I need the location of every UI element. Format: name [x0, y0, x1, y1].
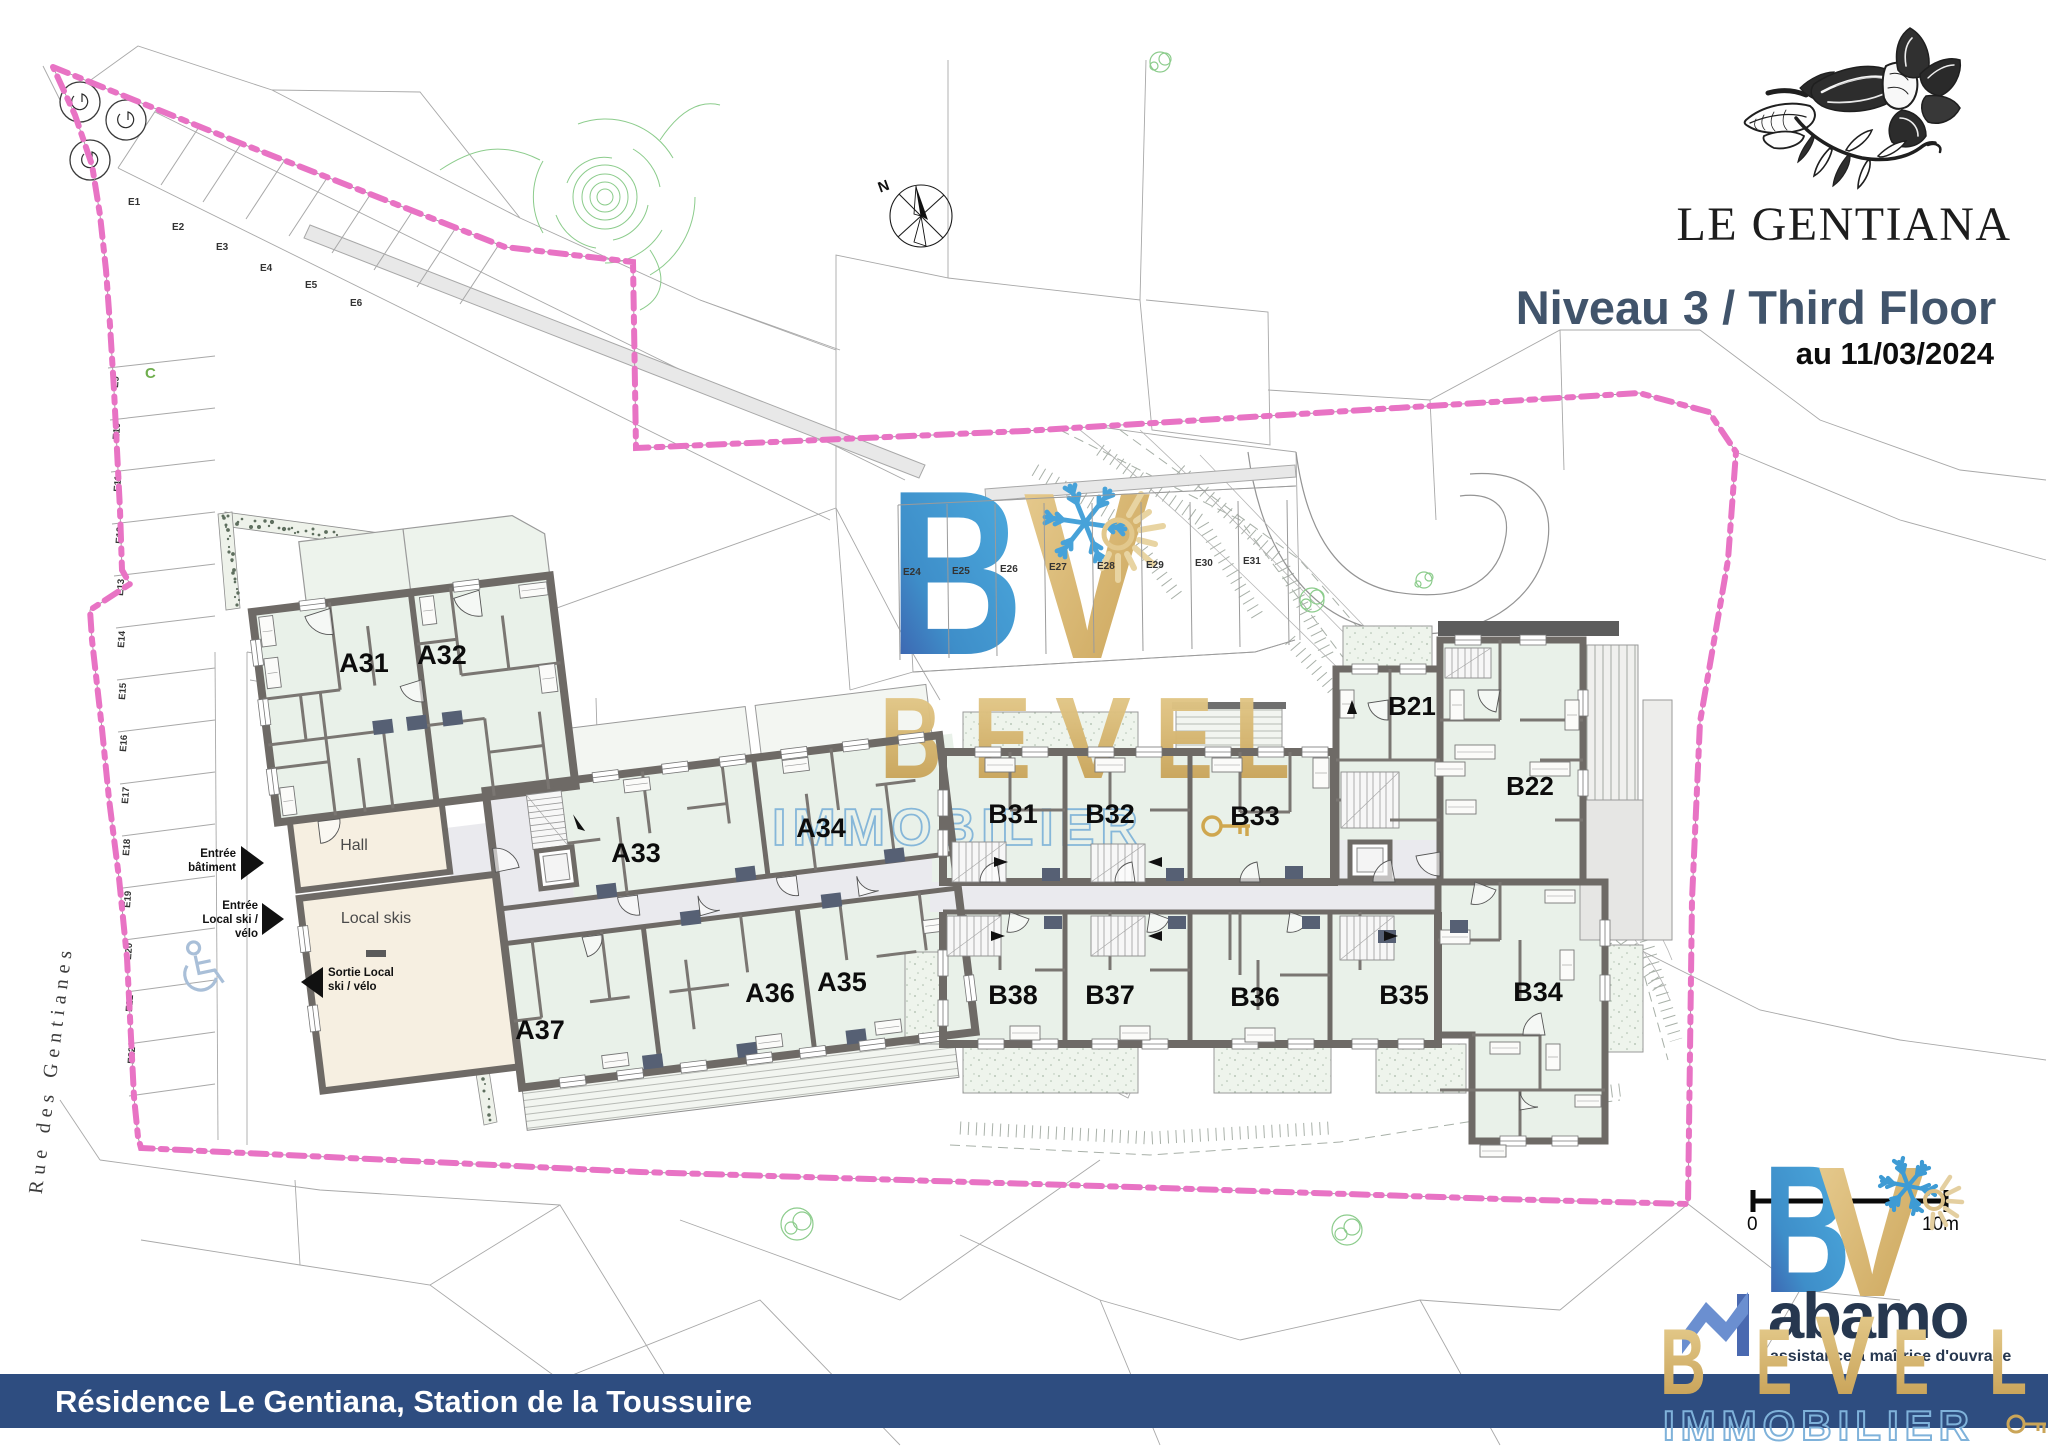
svg-text:E17: E17 — [120, 787, 132, 805]
svg-text:L: L — [1234, 673, 1290, 803]
svg-text:V: V — [1815, 1293, 1875, 1418]
svg-text:E15: E15 — [117, 682, 129, 700]
svg-text:Résidence Le Gentiana, Station: Résidence Le Gentiana, Station de la Tou… — [55, 1384, 752, 1419]
svg-text:Hall: Hall — [340, 837, 368, 854]
svg-text:E: E — [1155, 673, 1213, 803]
svg-text:B32: B32 — [1085, 799, 1135, 829]
svg-text:E26: E26 — [1000, 564, 1018, 575]
svg-text:B: B — [1660, 1309, 1706, 1414]
svg-text:0: 0 — [1747, 1214, 1758, 1235]
svg-text:A34: A34 — [796, 813, 846, 843]
svg-text:L: L — [1989, 1309, 2027, 1414]
svg-text:E31: E31 — [1243, 556, 1261, 567]
svg-text:bâtiment: bâtiment — [188, 862, 236, 874]
svg-text:V: V — [1023, 444, 1151, 709]
svg-text:Local skis: Local skis — [341, 910, 411, 927]
svg-text:B34: B34 — [1513, 977, 1563, 1007]
svg-text:E30: E30 — [1195, 558, 1213, 569]
svg-text:E18: E18 — [121, 839, 133, 857]
svg-text:E27: E27 — [1049, 562, 1067, 573]
svg-text:B37: B37 — [1085, 980, 1135, 1010]
svg-text:E: E — [1893, 1309, 1929, 1414]
svg-text:E3: E3 — [216, 242, 229, 253]
svg-text:Entrée: Entrée — [200, 848, 236, 860]
svg-text:B36: B36 — [1230, 982, 1280, 1012]
svg-text:B38: B38 — [988, 980, 1038, 1010]
svg-text:E4: E4 — [260, 263, 273, 274]
svg-text:B21: B21 — [1388, 691, 1436, 721]
svg-text:A32: A32 — [417, 640, 467, 670]
svg-text:E24: E24 — [903, 567, 921, 578]
svg-text:Entrée: Entrée — [222, 900, 258, 912]
svg-text:A36: A36 — [745, 978, 795, 1008]
svg-text:A31: A31 — [339, 648, 389, 678]
svg-text:ski / vélo: ski / vélo — [328, 981, 377, 993]
svg-text:E2: E2 — [172, 222, 185, 233]
svg-text:Niveau 3 / Third Floor: Niveau 3 / Third Floor — [1516, 281, 1997, 334]
svg-text:E: E — [973, 673, 1031, 803]
svg-text:A37: A37 — [515, 1015, 565, 1045]
svg-text:E6: E6 — [350, 298, 363, 309]
svg-text:B35: B35 — [1379, 980, 1429, 1010]
svg-text:E: E — [1756, 1309, 1792, 1414]
svg-text:Local ski /: Local ski / — [202, 914, 258, 926]
svg-text:vélo: vélo — [235, 928, 258, 940]
svg-text:B22: B22 — [1506, 771, 1554, 801]
svg-text:E29: E29 — [1146, 560, 1164, 571]
svg-text:E14: E14 — [116, 630, 128, 648]
svg-text:IMMOBILIER: IMMOBILIER — [1663, 1402, 1975, 1447]
svg-text:E25: E25 — [952, 566, 970, 577]
svg-text:A33: A33 — [611, 838, 661, 868]
svg-text:E28: E28 — [1097, 561, 1115, 572]
svg-text:LE GENTIANA: LE GENTIANA — [1676, 198, 2011, 251]
svg-text:B33: B33 — [1230, 801, 1280, 831]
svg-text:au 11/03/2024: au 11/03/2024 — [1796, 336, 1995, 371]
svg-text:E5: E5 — [305, 280, 318, 291]
svg-text:E16: E16 — [118, 735, 130, 753]
svg-text:E1: E1 — [128, 197, 141, 208]
svg-text:A35: A35 — [817, 967, 867, 997]
svg-text:Sortie Local: Sortie Local — [328, 967, 394, 979]
svg-text:assistance à maîtrise d'ouvrag: assistance à maîtrise d'ouvrage — [1770, 1348, 2011, 1365]
svg-text:B31: B31 — [988, 799, 1038, 829]
svg-text:C: C — [145, 365, 156, 382]
